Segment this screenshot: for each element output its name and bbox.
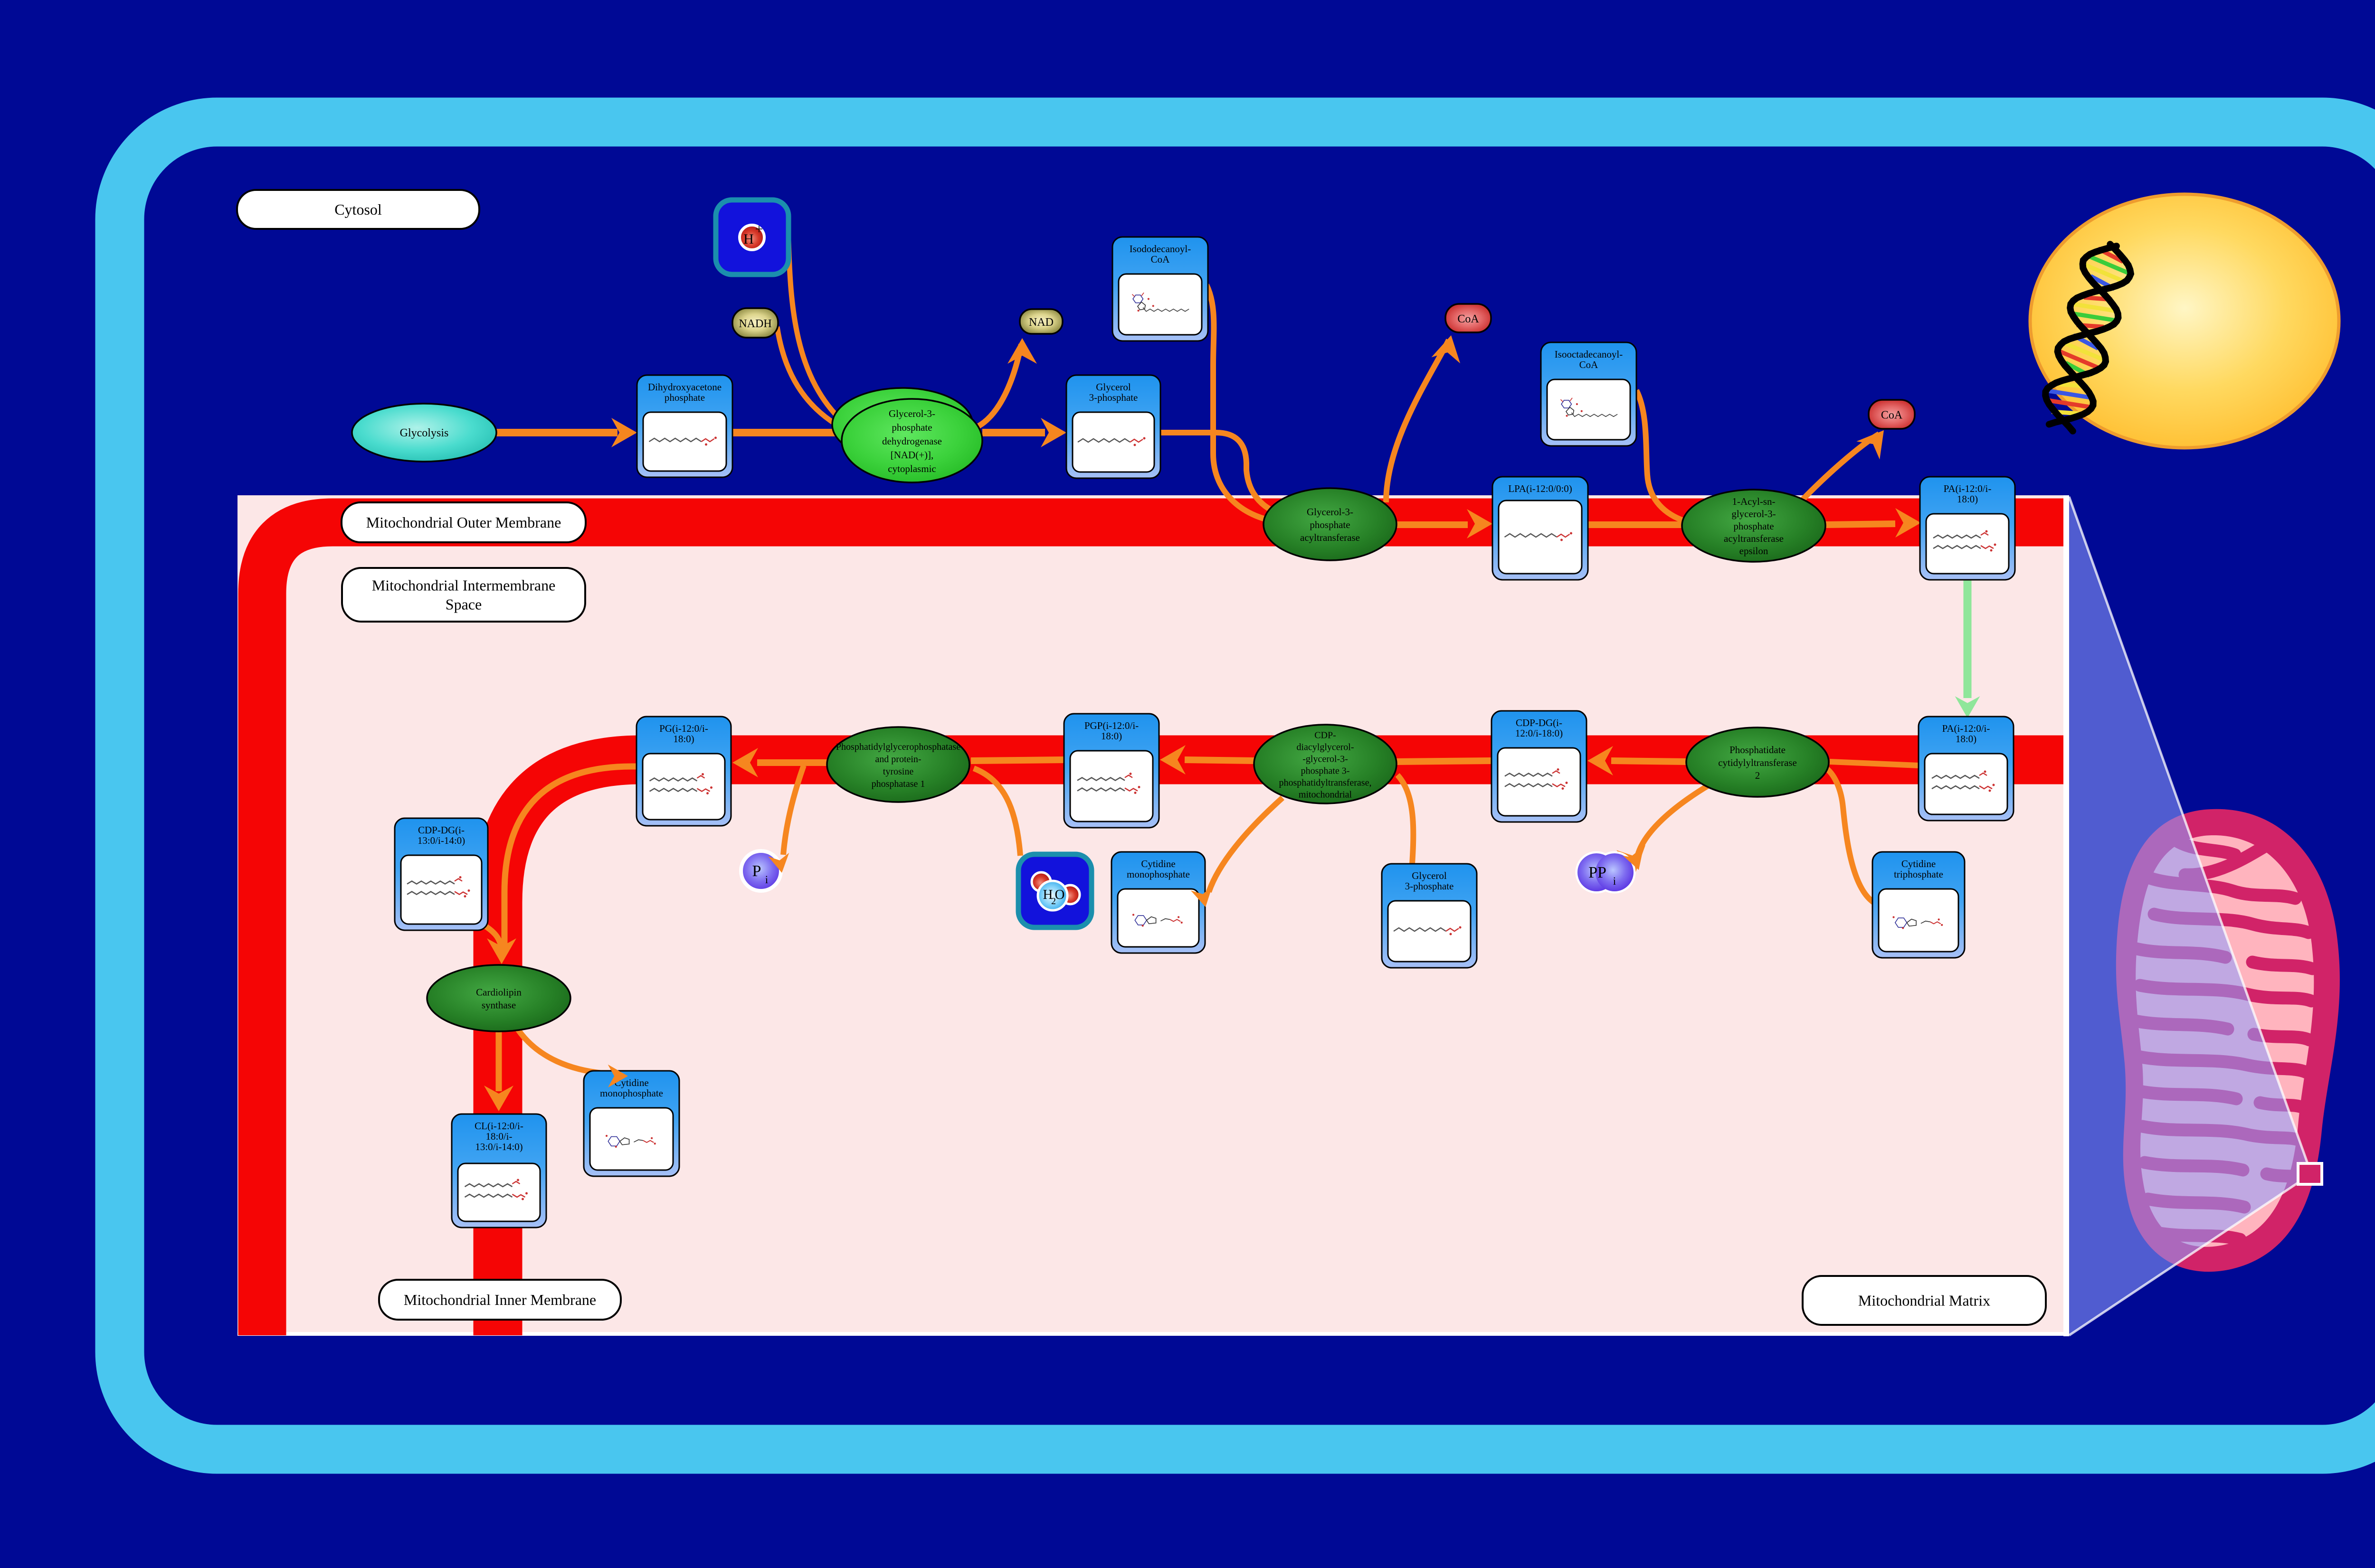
svg-text:PA(i-12:0/i-: PA(i-12:0/i- — [1942, 723, 1990, 734]
svg-text:PG(i-12:0/i-: PG(i-12:0/i- — [659, 723, 708, 734]
svg-text:phosphate: phosphate — [1733, 520, 1774, 532]
svg-text:P: P — [752, 862, 761, 880]
svg-text:Mitochondrial Intermembrane: Mitochondrial Intermembrane — [372, 577, 556, 594]
svg-text:13:0/i-14:0): 13:0/i-14:0) — [475, 1141, 522, 1152]
svg-text:Isooctadecanoyl-: Isooctadecanoyl- — [1555, 349, 1623, 360]
svg-text:Phosphatidylglycerophosphatase: Phosphatidylglycerophosphatase — [836, 742, 960, 752]
svg-text:synthase: synthase — [482, 1000, 516, 1011]
svg-text:CoA: CoA — [1579, 359, 1599, 370]
svg-text:PP: PP — [1588, 864, 1606, 881]
svg-text:phosphatidyltransferase,: phosphatidyltransferase, — [1279, 778, 1372, 788]
svg-text:phosphate: phosphate — [665, 392, 705, 403]
svg-text:Cardiolipin: Cardiolipin — [476, 987, 522, 998]
svg-text:Glycerol: Glycerol — [1412, 870, 1447, 881]
svg-text:and protein-: and protein- — [875, 754, 921, 765]
svg-text:phosphatase 1: phosphatase 1 — [872, 779, 925, 789]
svg-text:2: 2 — [1755, 770, 1760, 781]
svg-text:triphosphate: triphosphate — [1894, 869, 1943, 880]
svg-text:cytoplasmic: cytoplasmic — [888, 463, 936, 474]
svg-text:Glycerol-3-: Glycerol-3- — [889, 408, 935, 419]
svg-text:phosphate 3-: phosphate 3- — [1301, 766, 1350, 776]
svg-text:monophosphate: monophosphate — [1127, 869, 1190, 880]
svg-text:12:0/i-18:0): 12:0/i-18:0) — [1515, 727, 1563, 739]
svg-text:dehydrogenase: dehydrogenase — [882, 435, 942, 447]
svg-text:acyltransferase: acyltransferase — [1724, 533, 1784, 544]
svg-text:18:0): 18:0) — [1957, 493, 1978, 505]
svg-text:Mitochondrial Outer Membrane: Mitochondrial Outer Membrane — [366, 514, 561, 531]
svg-text:CoA: CoA — [1151, 254, 1170, 265]
svg-text:NAD: NAD — [1029, 316, 1054, 329]
svg-text:Glycolysis: Glycolysis — [400, 427, 449, 439]
svg-text:phosphate: phosphate — [892, 422, 932, 433]
svg-text:18:0): 18:0) — [1101, 730, 1122, 742]
svg-text:Isododecanoyl-: Isododecanoyl- — [1130, 243, 1191, 255]
svg-text:Space: Space — [446, 596, 482, 613]
svg-text:i: i — [1613, 875, 1616, 887]
svg-text:3-phosphate: 3-phosphate — [1089, 392, 1138, 403]
svg-text:O: O — [1055, 887, 1065, 902]
svg-text:i: i — [765, 874, 768, 886]
svg-text:LPA(i-12:0/0:0): LPA(i-12:0/0:0) — [1508, 483, 1572, 494]
svg-text:NADH: NADH — [739, 318, 771, 330]
svg-text:Phosphatidate: Phosphatidate — [1729, 744, 1786, 756]
svg-text:phosphate: phosphate — [1310, 519, 1350, 530]
svg-text:PA(i-12:0/i-: PA(i-12:0/i- — [1944, 483, 1992, 494]
svg-text:3-phosphate: 3-phosphate — [1405, 880, 1454, 892]
svg-text:Mitochondrial Matrix: Mitochondrial Matrix — [1858, 1292, 1990, 1309]
svg-text:+: + — [755, 221, 763, 237]
svg-text:13:0/i-14:0): 13:0/i-14:0) — [418, 835, 465, 846]
svg-text:Glycerol: Glycerol — [1096, 381, 1131, 393]
svg-text:diacylglycerol-: diacylglycerol- — [1296, 742, 1354, 753]
svg-text:mitochondrial: mitochondrial — [1299, 790, 1352, 800]
svg-text:epsilon: epsilon — [1739, 545, 1768, 557]
svg-text:18:0): 18:0) — [1956, 733, 1976, 745]
svg-text:1-Acyl-sn-: 1-Acyl-sn- — [1732, 496, 1776, 507]
svg-text:Glycerol-3-: Glycerol-3- — [1307, 506, 1353, 518]
svg-text:18:0): 18:0) — [673, 733, 694, 745]
svg-text:acyltransferase: acyltransferase — [1300, 532, 1360, 543]
svg-text:tyrosine: tyrosine — [883, 766, 914, 777]
svg-text:Cytidine: Cytidine — [1901, 858, 1936, 869]
svg-text:glycerol-3-: glycerol-3- — [1731, 508, 1776, 520]
svg-text:CDP-DG(i-: CDP-DG(i- — [418, 824, 465, 836]
svg-text:H: H — [743, 231, 754, 247]
svg-text:CL(i-12:0/i-: CL(i-12:0/i- — [475, 1120, 523, 1132]
svg-text:CDP-DG(i-: CDP-DG(i- — [1516, 717, 1562, 728]
svg-text:Cytidine: Cytidine — [1141, 858, 1175, 869]
svg-text:Cytosol: Cytosol — [334, 201, 382, 218]
svg-text:Mitochondrial Inner Membrane: Mitochondrial Inner Membrane — [404, 1291, 596, 1308]
svg-text:-glycerol-3-: -glycerol-3- — [1302, 754, 1348, 765]
svg-text:CoA: CoA — [1881, 409, 1903, 422]
svg-text:[NAD(+)],: [NAD(+)], — [891, 449, 934, 461]
svg-text:cytidylyltransferase: cytidylyltransferase — [1718, 757, 1797, 768]
svg-text:PGP(i-12:0/i-: PGP(i-12:0/i- — [1084, 720, 1139, 731]
svg-text:Dihydroxyacetone: Dihydroxyacetone — [648, 381, 722, 393]
svg-text:CDP-: CDP- — [1314, 730, 1336, 741]
svg-text:CoA: CoA — [1457, 313, 1479, 325]
svg-text:monophosphate: monophosphate — [600, 1087, 663, 1099]
svg-text:18:0/i-: 18:0/i- — [486, 1131, 513, 1142]
